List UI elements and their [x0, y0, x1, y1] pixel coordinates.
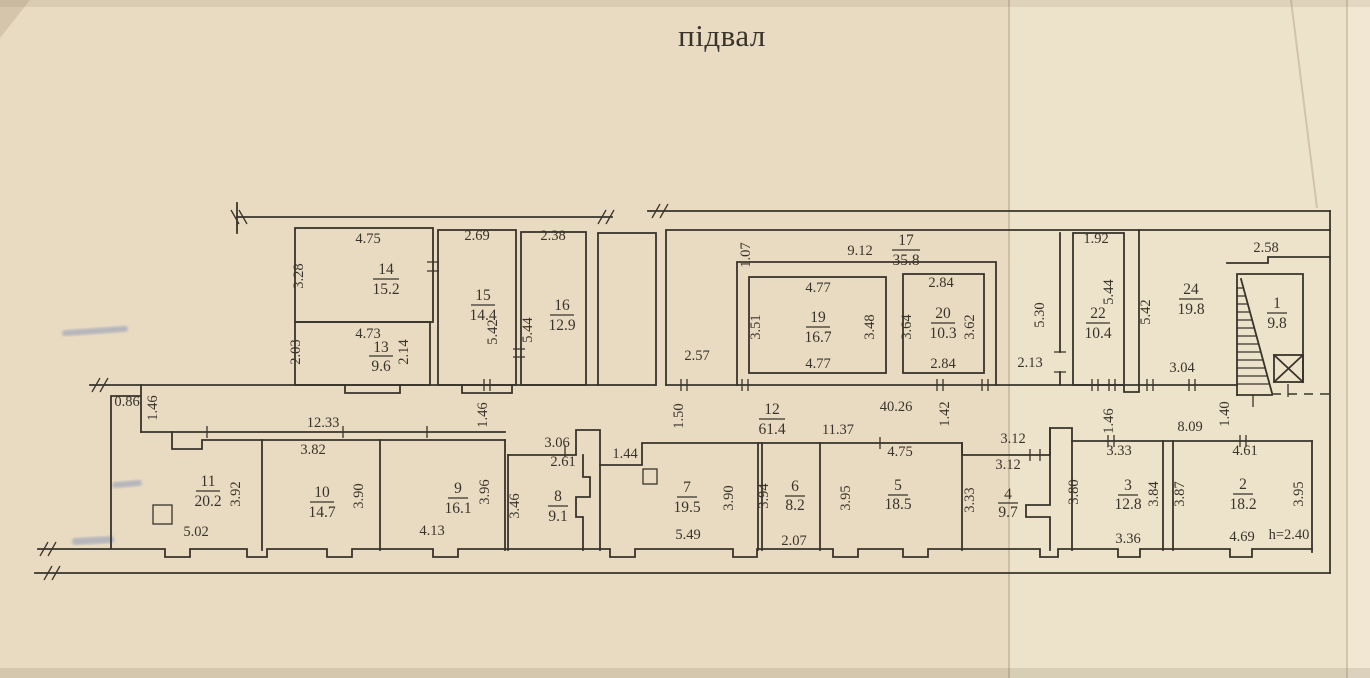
dim-c-146a: 1.46 [145, 395, 161, 420]
svg-text:18.5: 18.5 [884, 496, 911, 513]
dim-r15-top: 2.69 [464, 228, 489, 244]
svg-text:9.6: 9.6 [371, 358, 391, 375]
dim-r19-bottom: 4.77 [805, 356, 830, 372]
dim-r20-right: 3.62 [962, 314, 978, 339]
dim-r19-right: 3.48 [862, 314, 878, 339]
svg-text:61.4: 61.4 [758, 421, 785, 438]
dim-c-1137: 11.37 [822, 422, 854, 438]
dim-r20-left: 3.64 [899, 314, 915, 340]
svg-text:11: 11 [201, 473, 216, 490]
svg-text:24: 24 [1183, 281, 1199, 298]
floor-plan-drawing: підвал [0, 0, 1370, 678]
dim-c-809: 8.09 [1177, 419, 1202, 435]
dim-r1-top: 2.58 [1253, 240, 1278, 256]
svg-text:16: 16 [554, 297, 570, 314]
svg-text:15: 15 [475, 287, 491, 304]
scanned-floor-plan-sheet: підвал [0, 0, 1370, 678]
dim-c-306: 3.06 [544, 435, 569, 451]
dim-r19-top: 4.77 [805, 280, 830, 296]
svg-text:2: 2 [1239, 476, 1247, 493]
dim-r11-right: 3.92 [228, 481, 244, 506]
svg-text:9.7: 9.7 [998, 504, 1018, 521]
svg-text:17: 17 [898, 232, 914, 249]
svg-text:7: 7 [683, 479, 691, 496]
dim-r9-bottom: 4.13 [419, 523, 444, 539]
dim-ceiling-height: h=2.40 [1269, 527, 1310, 543]
dim-r17-width: 9.12 [847, 243, 872, 259]
svg-text:19: 19 [810, 309, 826, 326]
dim-hall22-width: 5.30 [1032, 302, 1048, 327]
dim-r17-gap: 1.07 [738, 242, 754, 267]
dim-c-146c: 1.46 [1101, 408, 1117, 433]
dim-r10-right: 3.90 [351, 483, 367, 508]
dim-r3-left: 3.80 [1066, 479, 1082, 504]
svg-text:12.9: 12.9 [548, 317, 575, 334]
dim-r3-top: 3.33 [1106, 443, 1131, 459]
svg-text:19.5: 19.5 [673, 499, 700, 516]
svg-text:22: 22 [1090, 305, 1106, 322]
dim-hall-left: 2.57 [684, 348, 709, 364]
dim-c-312a: 3.12 [1000, 431, 1025, 447]
svg-text:19.8: 19.8 [1177, 301, 1204, 318]
svg-text:10.4: 10.4 [1084, 325, 1111, 342]
dim-r2-bottom: 4.69 [1229, 529, 1254, 545]
svg-text:3: 3 [1124, 477, 1132, 494]
dim-r14-top: 4.75 [355, 231, 380, 247]
dim-r2-left: 3.87 [1172, 481, 1188, 506]
dim-c-261: 2.61 [550, 454, 575, 470]
dim-r3-right: 3.84 [1146, 481, 1162, 507]
dim-r14-left: 3.28 [291, 263, 307, 288]
dim-r13-top: 4.73 [355, 326, 380, 342]
dim-r22-right: 5.44 [1101, 279, 1117, 305]
dim-c-312b: 3.12 [995, 457, 1020, 473]
dim-c-140: 1.40 [1217, 401, 1233, 426]
svg-text:1: 1 [1273, 295, 1281, 312]
dim-c-150: 1.50 [671, 403, 687, 428]
dim-r10-top: 3.82 [300, 442, 325, 458]
svg-text:12: 12 [764, 401, 780, 418]
dim-hall-right: 2.13 [1017, 355, 1042, 371]
svg-text:35.8: 35.8 [892, 252, 919, 269]
svg-text:12.8: 12.8 [1114, 496, 1141, 513]
dim-c-086: 0.86 [114, 394, 139, 410]
dim-r6-bottom: 2.07 [781, 533, 806, 549]
svg-text:6: 6 [791, 478, 799, 495]
dim-r19-left: 3.51 [748, 314, 764, 339]
dim-r13-right: 2.14 [396, 339, 412, 365]
dim-c-4026: 40.26 [880, 399, 913, 415]
dim-r16-top: 2.38 [540, 228, 565, 244]
dim-r2-right: 3.95 [1291, 481, 1307, 506]
drawing-title: підвал [678, 18, 766, 53]
dim-r9-right: 3.96 [477, 479, 493, 504]
svg-text:20.2: 20.2 [194, 493, 221, 510]
dim-r15-right: 5.42 [485, 319, 501, 344]
svg-text:8: 8 [554, 488, 562, 505]
dim-c-1233: 12.33 [307, 415, 340, 431]
dim-r20-bottom: 2.84 [930, 356, 956, 372]
dim-c-146b: 1.46 [475, 402, 491, 427]
dim-r8-left: 3.46 [507, 493, 523, 518]
svg-text:9.8: 9.8 [1267, 315, 1287, 332]
dim-r22-top: 1.92 [1083, 231, 1108, 247]
svg-text:9.1: 9.1 [548, 508, 567, 525]
svg-text:8.2: 8.2 [785, 497, 804, 514]
svg-text:10.3: 10.3 [929, 325, 956, 342]
svg-text:4: 4 [1004, 486, 1012, 503]
svg-text:14.7: 14.7 [308, 504, 335, 521]
dim-r4-left: 3.33 [962, 487, 978, 512]
dim-r24-bottom: 3.04 [1169, 360, 1195, 376]
dim-r7-bottom: 5.49 [675, 527, 700, 543]
svg-text:5: 5 [894, 477, 902, 494]
svg-text:14: 14 [378, 261, 394, 278]
dim-r16-left: 5.44 [520, 317, 536, 343]
svg-text:20: 20 [935, 305, 951, 322]
svg-text:18.2: 18.2 [1229, 496, 1256, 513]
dim-r3-bottom: 3.36 [1115, 531, 1140, 547]
dim-r20-top: 2.84 [928, 275, 954, 291]
dim-r5-left: 3.95 [838, 485, 854, 510]
dim-r13-left: 2.03 [288, 339, 304, 364]
svg-text:16.1: 16.1 [444, 500, 471, 517]
dim-r11-bottom: 5.02 [183, 524, 208, 540]
svg-text:16.7: 16.7 [804, 329, 831, 346]
dim-r5-top: 4.75 [887, 444, 912, 460]
svg-text:9: 9 [454, 480, 462, 497]
dim-r2-top: 4.61 [1232, 443, 1257, 459]
dim-r6-left: 3.94 [756, 483, 772, 509]
dim-r24-left: 5.42 [1138, 299, 1154, 324]
dim-c-144: 1.44 [612, 446, 638, 462]
dim-r7-right: 3.90 [721, 485, 737, 510]
svg-text:10: 10 [314, 484, 330, 501]
svg-text:15.2: 15.2 [372, 281, 399, 298]
dim-c-142: 1.42 [937, 401, 953, 426]
